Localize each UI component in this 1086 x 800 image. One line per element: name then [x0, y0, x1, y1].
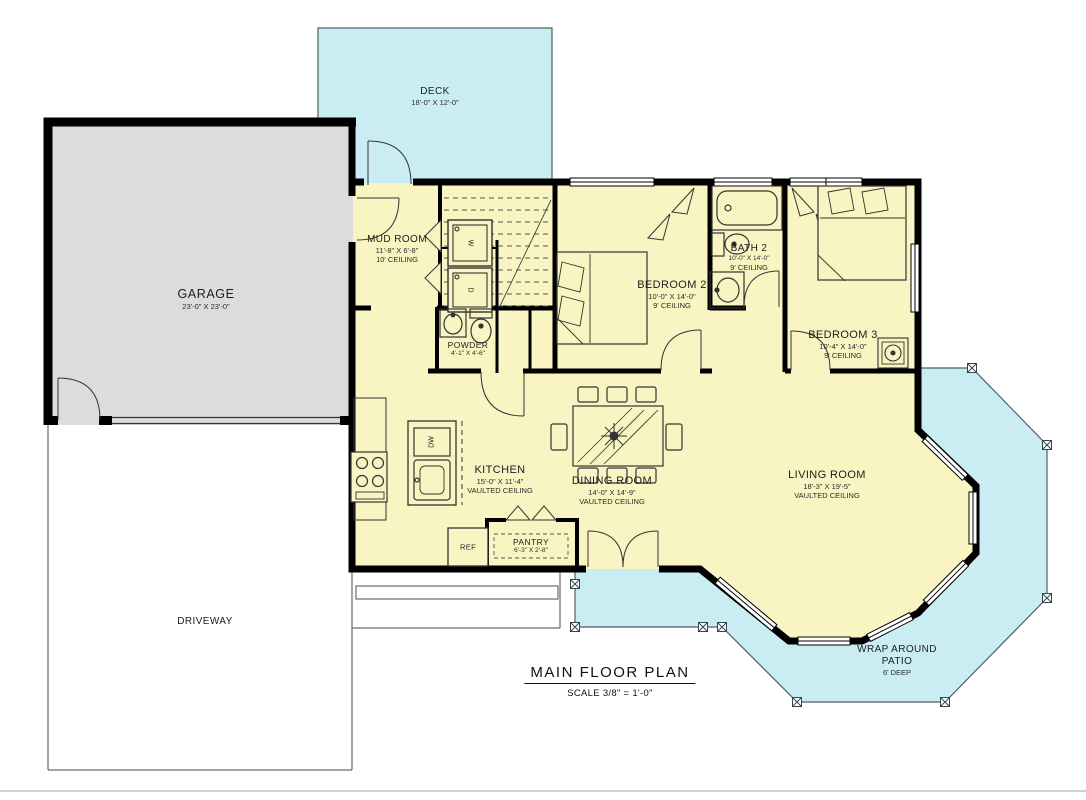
- kitchen-label: KITCHEN 15'-0" X 11'-4" VAULTED CEILING: [467, 464, 533, 495]
- washer-label: W: [467, 240, 474, 247]
- driveway-label: DRIVEWAY: [177, 616, 232, 628]
- nightstand: [878, 338, 908, 368]
- plan-scale-text: SCALE 3/8" = 1'-0": [567, 688, 653, 699]
- powder-label: POWDER 4'-1" X 4'-6": [448, 340, 489, 358]
- laundry-appliances: [448, 220, 492, 312]
- bedroom3-side-window: [911, 244, 919, 312]
- kitchen-island: [408, 421, 462, 505]
- range: [351, 452, 387, 502]
- mud-room-label: MUD ROOM 11'-8" X 6'-8" 10' CEILING: [367, 234, 427, 264]
- bath2-label: BATH 2 10'-0" X 14'-0" 9' CEILING: [728, 243, 769, 272]
- patio-label: WRAP AROUND PATIO 6' DEEP: [857, 644, 937, 677]
- plan-title: MAIN FLOOR PLAN SCALE 3/8" = 1'-0": [524, 664, 695, 699]
- refrigerator-label: REF: [460, 543, 476, 552]
- dishwasher-label: DW: [429, 436, 436, 448]
- pantry-label: PANTRY 6'-3" X 2'-8": [513, 537, 549, 555]
- bedroom3-bed: [818, 186, 906, 281]
- entry-steps: [356, 586, 558, 599]
- bay-window-right: [969, 492, 977, 544]
- bedroom2-window: [570, 178, 654, 186]
- floor-plan: DECK 18'-0" X 12'-0" GARAGE 23'-0" X 23'…: [0, 0, 1086, 800]
- bay-window-bottom: [798, 637, 850, 645]
- living-room-label: LIVING ROOM 18'-3" X 19'-5" VAULTED CEIL…: [788, 469, 866, 500]
- deck-label: DECK 18'-0" X 12'-0": [411, 86, 458, 107]
- dryer-label: D: [467, 287, 474, 292]
- plan-title-text: MAIN FLOOR PLAN: [524, 664, 695, 684]
- garage-label: GARAGE 23'-0" X 23'-0": [177, 287, 234, 311]
- garage-area: [48, 122, 356, 425]
- bedroom3-window: [790, 178, 862, 186]
- bedroom2-bed: [557, 252, 647, 344]
- bath2-window: [714, 178, 772, 186]
- bedroom3-label: BEDROOM 3 10'-4" X 14'-0" 9' CEILING: [808, 329, 878, 360]
- dining-room-label: DINING ROOM 14'-0" X 14'-9" VAULTED CEIL…: [572, 475, 652, 506]
- bedroom2-label: BEDROOM 2 10'-0" X 14'-0" 9' CEILING: [637, 279, 707, 310]
